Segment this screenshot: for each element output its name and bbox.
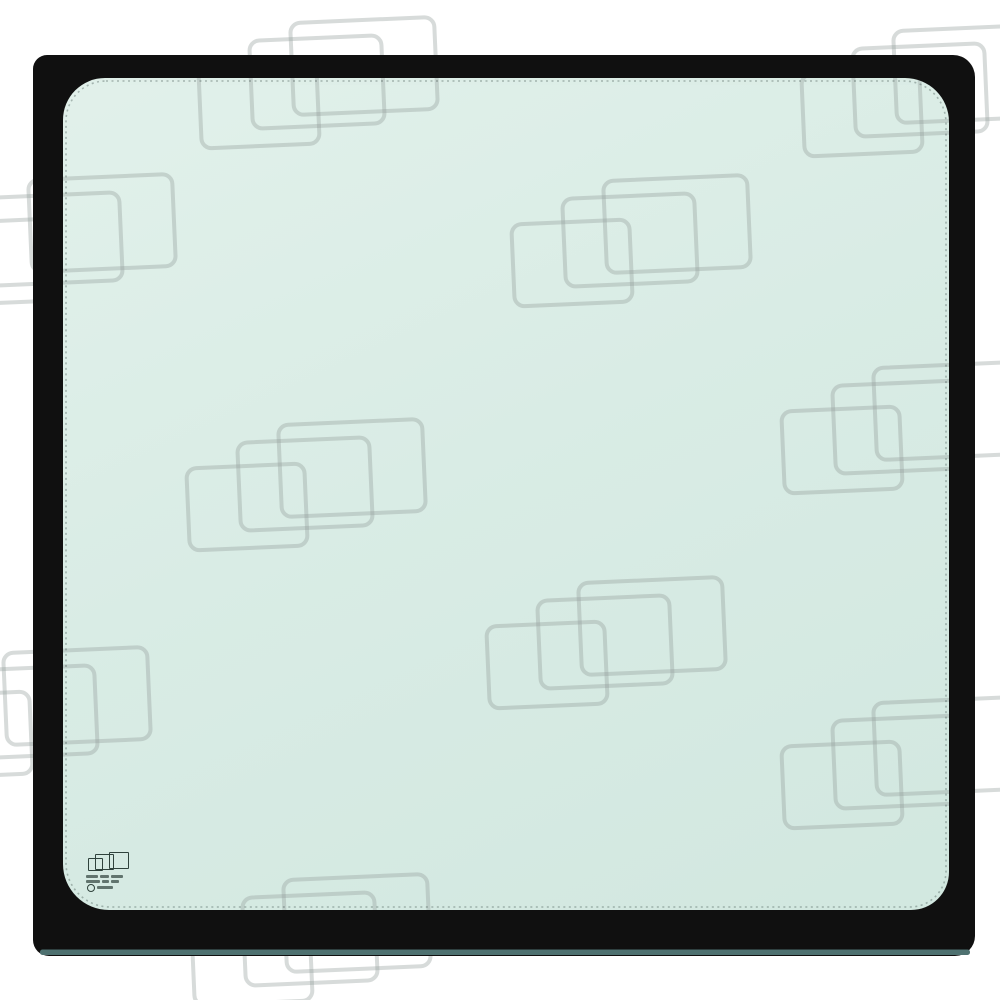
product-photo — [0, 0, 1000, 1000]
stamp-text-line — [100, 875, 109, 878]
frit-dotted-edge — [66, 81, 946, 907]
stamp-text-line — [86, 880, 100, 883]
frame-bottom-edge-teal — [40, 950, 970, 956]
stamp-text-line — [111, 875, 123, 878]
glass-safety-stamp — [86, 851, 134, 893]
circle-mark-icon — [87, 884, 95, 892]
stamp-text-line — [102, 880, 109, 883]
stamp-cert-text — [97, 886, 113, 889]
stamp-text-line — [111, 880, 119, 883]
three-overlapping-rectangles-icon — [109, 852, 129, 869]
window-frame — [0, 0, 1000, 1000]
frame-black-ring — [33, 55, 975, 956]
stamp-text-line — [86, 875, 98, 878]
